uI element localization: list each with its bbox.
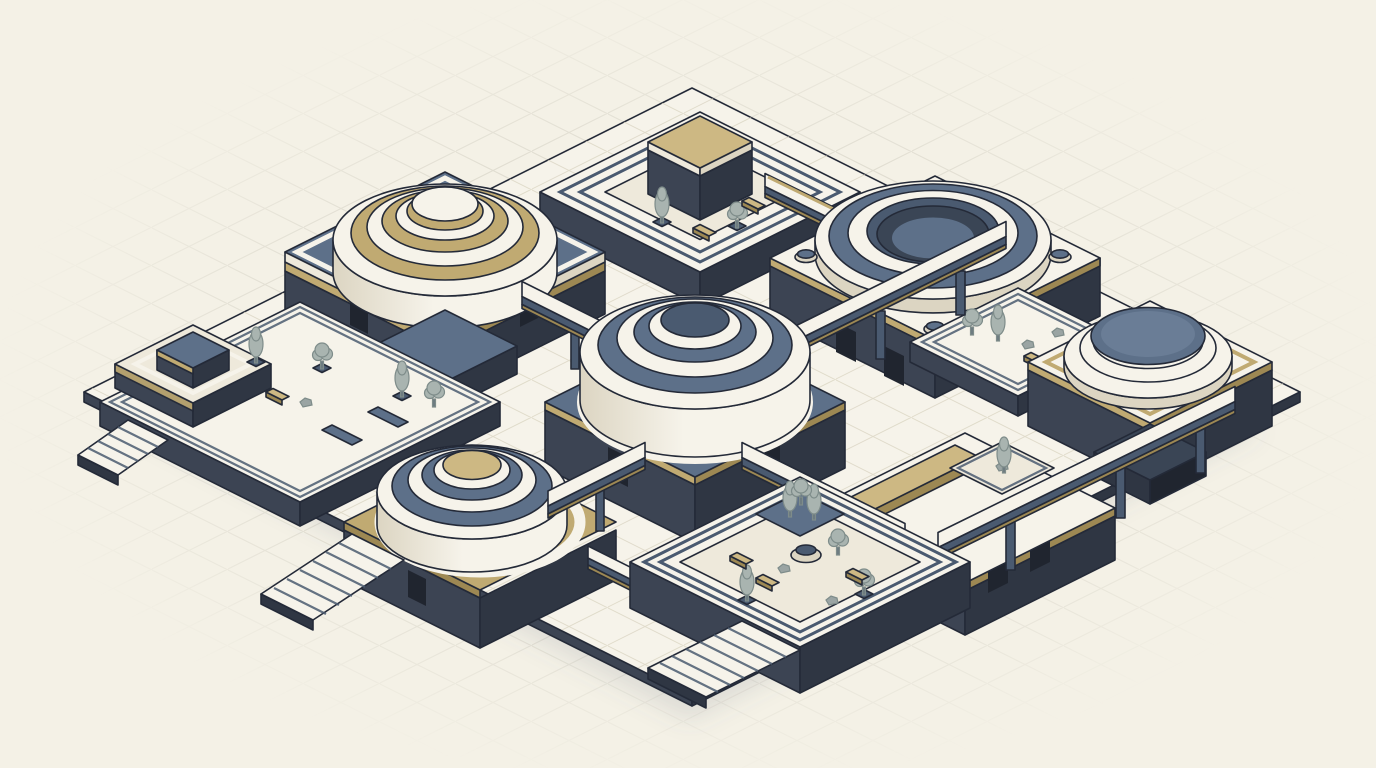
isometric-illustration xyxy=(0,0,1376,768)
isometric-scene xyxy=(0,0,1376,768)
central-dome xyxy=(580,295,810,457)
corner-stud xyxy=(795,250,817,263)
southwest-dome xyxy=(377,445,567,572)
corner-stud xyxy=(1049,250,1071,263)
